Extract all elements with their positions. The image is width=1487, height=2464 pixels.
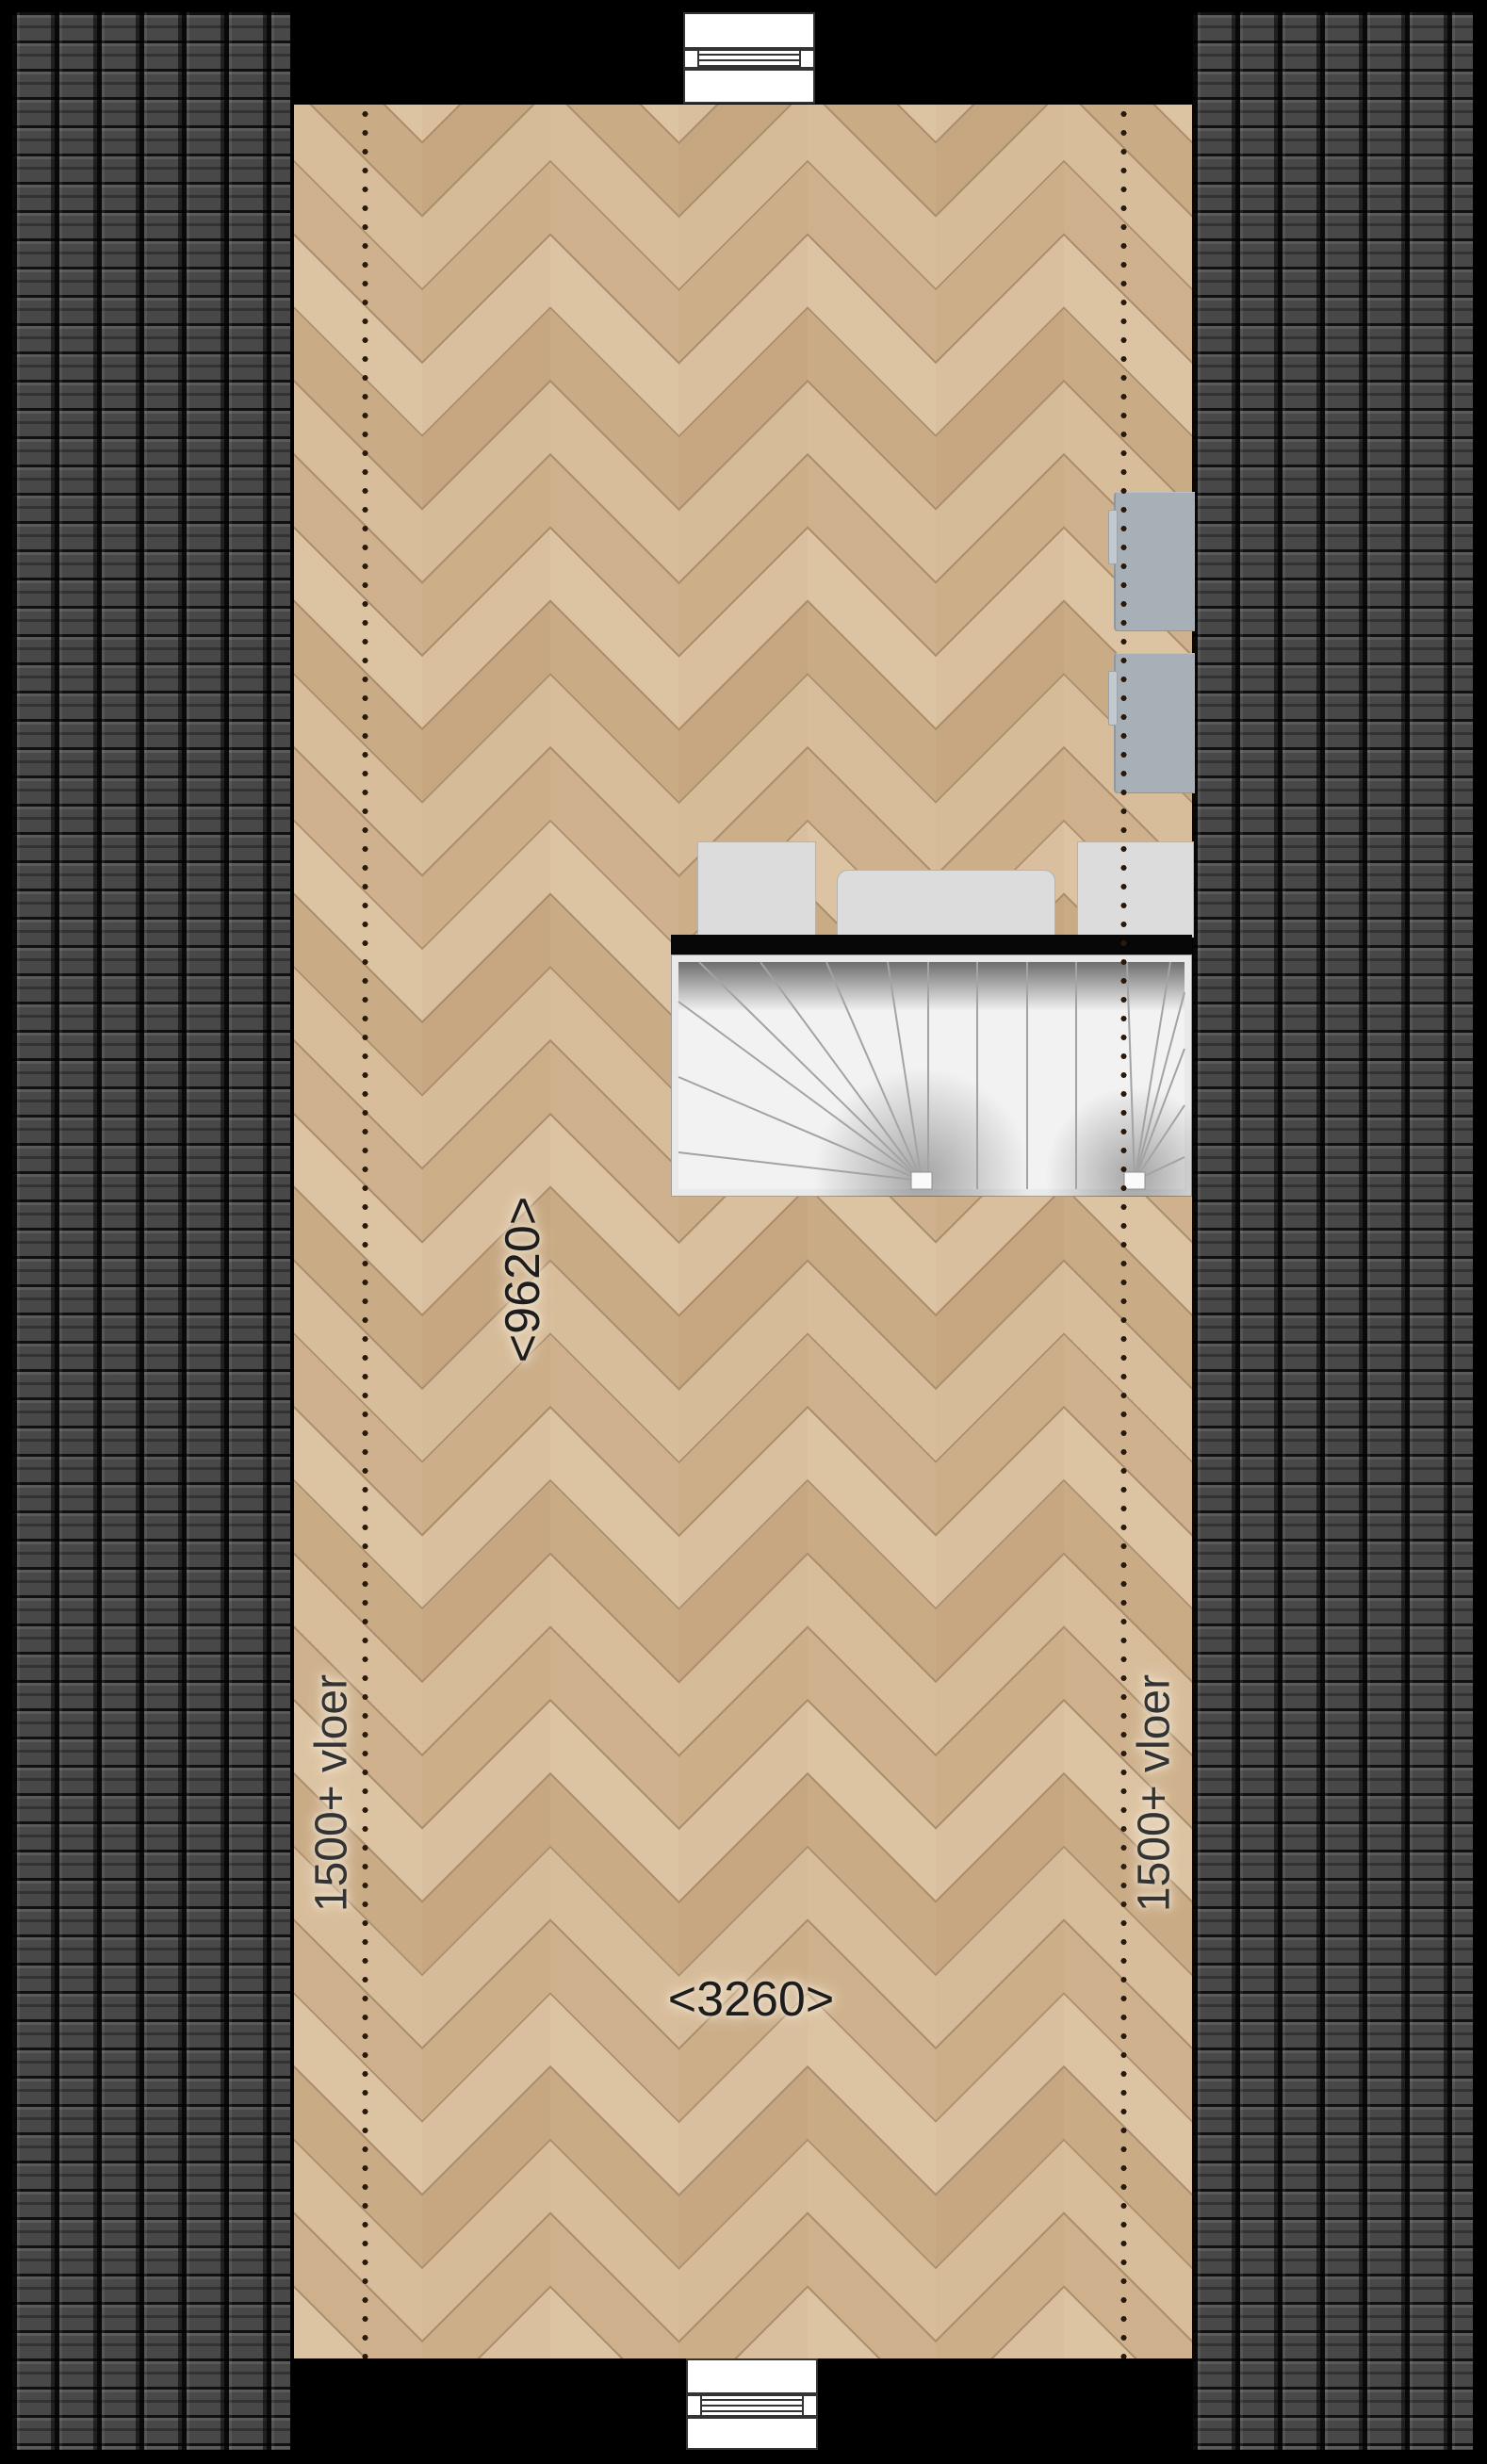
- louvre-slats-icon: [702, 2396, 802, 2415]
- dimension-label-horizontal: <3260>: [668, 1971, 834, 2028]
- herringbone-column: [1064, 105, 1192, 2358]
- window-jamb: [802, 2396, 816, 2415]
- herringbone-column: [936, 105, 1064, 2358]
- floor-height-note-right: 1500+ vloer: [1129, 1674, 1181, 1912]
- window-pane: [683, 12, 815, 49]
- stairwell-wall: [671, 935, 1192, 955]
- window-jamb: [799, 51, 813, 67]
- floor-height-note-left: 1500+ vloer: [306, 1674, 358, 1912]
- window-louvre: [686, 2394, 818, 2417]
- roof-tiles-left: [12, 12, 290, 2450]
- louvre-slats-icon: [699, 51, 799, 67]
- floor-plan-canvas: <9620> <3260> 1500+ vloer 1500+ vloer: [0, 0, 1487, 2464]
- cabinet-right: [1077, 841, 1194, 938]
- herringbone-column: [550, 105, 678, 2358]
- window-top: [683, 12, 815, 104]
- dimension-label-vertical: <9620>: [495, 1197, 551, 1363]
- cabinet-left: [697, 841, 816, 938]
- window-pane: [686, 2417, 818, 2450]
- window-louvre: [683, 49, 815, 69]
- height-limit-dotted-line-left: [362, 105, 368, 2358]
- roof-tiles-right: [1193, 12, 1473, 2450]
- newel-post-right: [1124, 1172, 1145, 1189]
- staircase: [671, 955, 1192, 1197]
- herringbone-column: [294, 105, 422, 2358]
- window-pane: [683, 69, 815, 104]
- height-limit-dotted-line-right: [1120, 105, 1127, 2358]
- window-jamb: [685, 51, 699, 67]
- window-jamb: [688, 2396, 702, 2415]
- newel-post-left: [911, 1172, 932, 1189]
- cabinet-middle-rounded: [837, 870, 1055, 938]
- radiator-valve: [1108, 510, 1118, 564]
- window-pane: [686, 2358, 818, 2394]
- radiator-valve: [1108, 671, 1118, 726]
- window-bottom: [686, 2358, 818, 2450]
